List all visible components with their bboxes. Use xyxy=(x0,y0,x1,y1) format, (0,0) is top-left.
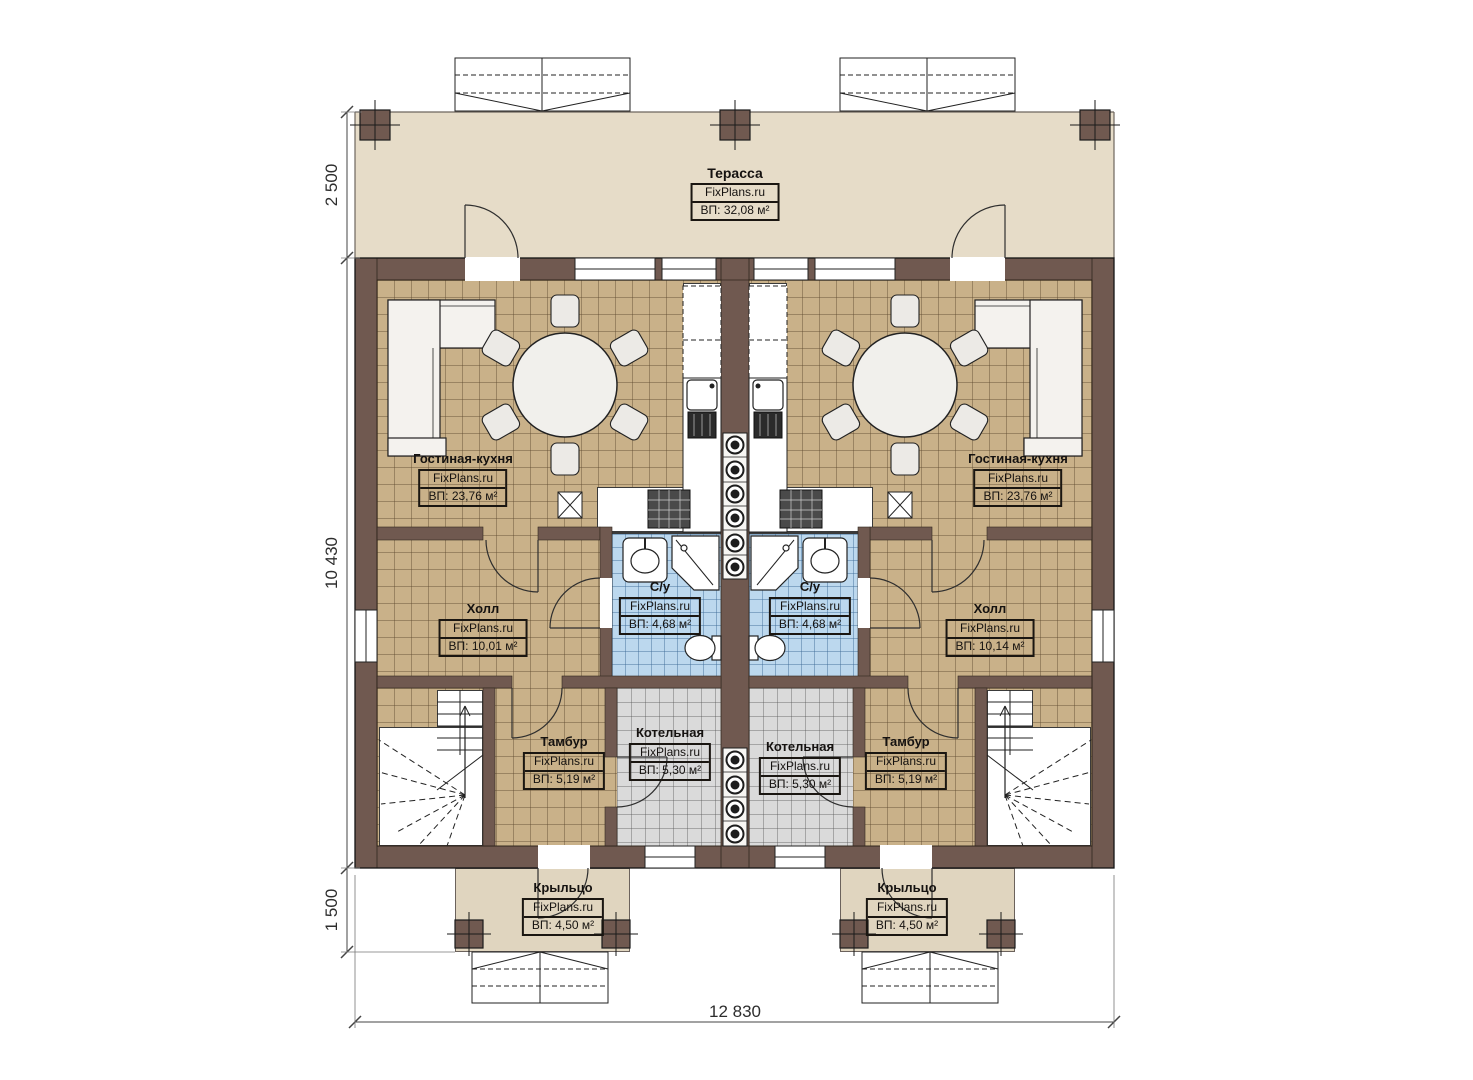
room-info-box: FixPlans.ru ВП: 4,68 м² xyxy=(619,597,701,635)
room-name: Гостиная-кухня xyxy=(968,452,1068,467)
room-name: Крыльцо xyxy=(522,881,604,896)
room-area: ВП: 4,68 м² xyxy=(621,617,699,633)
room-info-box: FixPlans.ru ВП: 5,19 м² xyxy=(523,752,605,790)
room-info-box: FixPlans.ru ВП: 10,01 м² xyxy=(439,619,528,657)
room-brand: FixPlans.ru xyxy=(867,754,945,772)
kitchen-right-lower-counter xyxy=(749,487,873,532)
room-info-box: FixPlans.ru ВП: 32,08 м² xyxy=(691,183,780,221)
terrace-steps-icon xyxy=(455,58,1015,111)
room-area: ВП: 4,68 м² xyxy=(771,617,849,633)
room-area: ВП: 5,19 м² xyxy=(525,772,603,788)
room-brand: FixPlans.ru xyxy=(441,621,526,639)
stairs-right-winder xyxy=(987,727,1091,846)
room-area: ВП: 4,50 м² xyxy=(868,918,946,934)
stairs-right-flight xyxy=(987,690,1033,727)
room-area: ВП: 5,30 м² xyxy=(761,777,839,793)
room-name: Тамбур xyxy=(865,735,947,750)
room-label-hall-left: Холл FixPlans.ru ВП: 10,01 м² xyxy=(439,602,528,657)
room-info-box: FixPlans.ru ВП: 23,76 м² xyxy=(974,469,1063,507)
room-area: ВП: 32,08 м² xyxy=(693,203,778,219)
room-info-box: FixPlans.ru ВП: 4,50 м² xyxy=(866,898,948,936)
room-area: ВП: 10,01 м² xyxy=(441,639,526,655)
room-label-boiler-left: Котельная FixPlans.ru ВП: 5,30 м² xyxy=(629,726,711,781)
room-info-box: FixPlans.ru ВП: 10,14 м² xyxy=(946,619,1035,657)
room-label-living-left: Гостиная-кухня FixPlans.ru ВП: 23,76 м² xyxy=(413,452,513,507)
room-brand: FixPlans.ru xyxy=(631,745,709,763)
room-info-box: FixPlans.ru ВП: 5,30 м² xyxy=(759,757,841,795)
room-info-box: FixPlans.ru ВП: 23,76 м² xyxy=(419,469,508,507)
room-name: С/у xyxy=(769,580,851,595)
room-label-porch-left: Крыльцо FixPlans.ru ВП: 4,50 м² xyxy=(522,881,604,936)
room-info-box: FixPlans.ru ВП: 5,19 м² xyxy=(865,752,947,790)
room-name: Крыльцо xyxy=(866,881,948,896)
room-brand: FixPlans.ru xyxy=(771,599,849,617)
room-info-box: FixPlans.ru ВП: 5,30 м² xyxy=(629,743,711,781)
room-name: Тамбур xyxy=(523,735,605,750)
room-area: ВП: 5,30 м² xyxy=(631,763,709,779)
room-name: Холл xyxy=(439,602,528,617)
room-name: Котельная xyxy=(629,726,711,741)
room-label-bath-left: С/у FixPlans.ru ВП: 4,68 м² xyxy=(619,580,701,635)
room-area: ВП: 10,14 м² xyxy=(948,639,1033,655)
stairs-left-flight xyxy=(437,690,483,727)
room-brand: FixPlans.ru xyxy=(524,900,602,918)
room-label-porch-right: Крыльцо FixPlans.ru ВП: 4,50 м² xyxy=(866,881,948,936)
room-area: ВП: 5,19 м² xyxy=(867,772,945,788)
room-label-bath-right: С/у FixPlans.ru ВП: 4,68 м² xyxy=(769,580,851,635)
room-info-box: FixPlans.ru ВП: 4,68 м² xyxy=(769,597,851,635)
room-name: С/у xyxy=(619,580,701,595)
room-area: ВП: 4,50 м² xyxy=(524,918,602,934)
room-label-hall-right: Холл FixPlans.ru ВП: 10,14 м² xyxy=(946,602,1035,657)
room-brand: FixPlans.ru xyxy=(868,900,946,918)
kitchen-left-lower-counter xyxy=(597,487,721,532)
house-interior-floor xyxy=(377,280,1092,846)
room-brand: FixPlans.ru xyxy=(621,599,699,617)
room-brand: FixPlans.ru xyxy=(761,759,839,777)
room-label-living-right: Гостиная-кухня FixPlans.ru ВП: 23,76 м² xyxy=(968,452,1068,507)
room-info-box: FixPlans.ru ВП: 4,50 м² xyxy=(522,898,604,936)
dimension-porch-depth: 1 500 xyxy=(322,889,342,932)
room-label-boiler-right: Котельная FixPlans.ru ВП: 5,30 м² xyxy=(759,740,841,795)
room-name: Холл xyxy=(946,602,1035,617)
porch-steps-icon xyxy=(472,952,998,1003)
room-area: ВП: 23,76 м² xyxy=(421,489,506,505)
room-name: Терасса xyxy=(691,165,780,181)
room-label-vestibule-left: Тамбур FixPlans.ru ВП: 5,19 м² xyxy=(523,735,605,790)
room-name: Котельная xyxy=(759,740,841,755)
stairs-left-winder xyxy=(379,727,483,846)
floor-plan-canvas: 2 500 10 430 1 500 12 830 Терасса FixPla… xyxy=(0,0,1473,1080)
room-label-terrace: Терасса FixPlans.ru ВП: 32,08 м² xyxy=(691,165,780,221)
dimension-total-width: 12 830 xyxy=(709,1002,761,1022)
room-brand: FixPlans.ru xyxy=(948,621,1033,639)
room-area: ВП: 23,76 м² xyxy=(976,489,1061,505)
room-brand: FixPlans.ru xyxy=(976,471,1061,489)
dimension-terrace-depth: 2 500 xyxy=(322,164,342,207)
room-brand: FixPlans.ru xyxy=(421,471,506,489)
room-label-vestibule-right: Тамбур FixPlans.ru ВП: 5,19 м² xyxy=(865,735,947,790)
room-name: Гостиная-кухня xyxy=(413,452,513,467)
room-brand: FixPlans.ru xyxy=(693,185,778,203)
dimension-house-depth: 10 430 xyxy=(322,537,342,589)
room-brand: FixPlans.ru xyxy=(525,754,603,772)
